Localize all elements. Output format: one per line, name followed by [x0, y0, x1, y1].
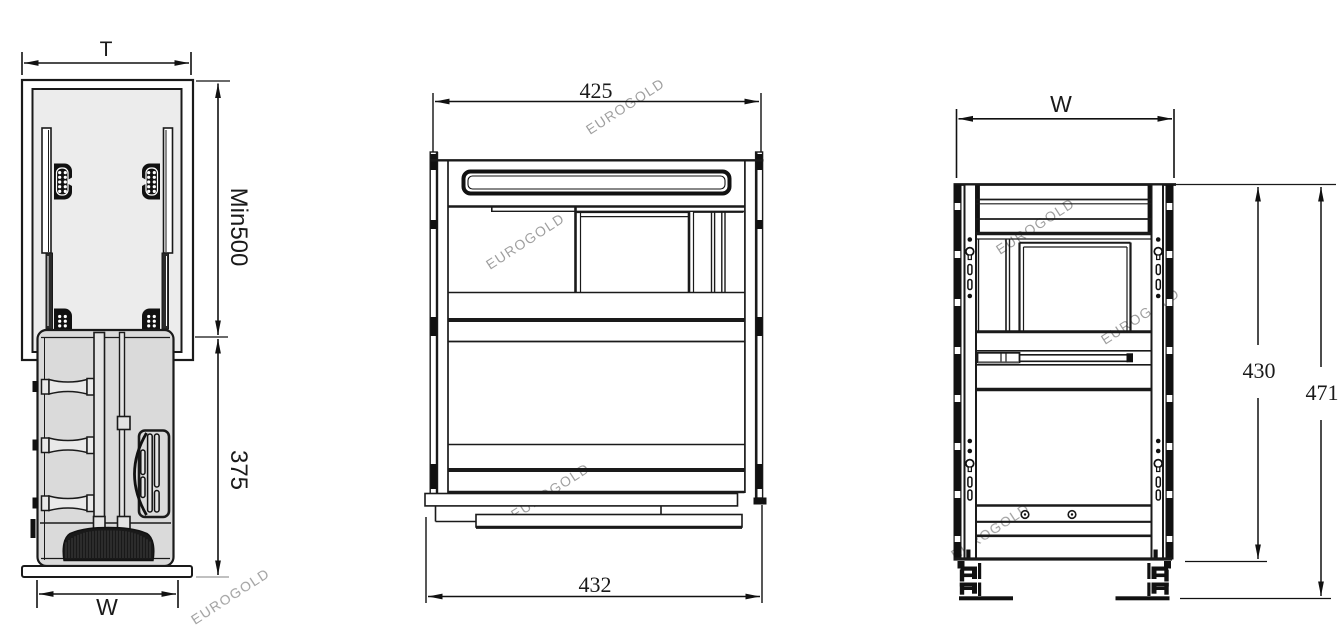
- svg-text:W: W: [96, 594, 118, 620]
- svg-text:471: 471: [1306, 380, 1339, 405]
- svg-text:EUROGOLD: EUROGOLD: [483, 210, 568, 273]
- svg-text:EUROGOLD: EUROGOLD: [188, 565, 273, 628]
- svg-text:W: W: [1050, 91, 1072, 117]
- svg-text:430: 430: [1243, 358, 1276, 383]
- svg-text:375: 375: [225, 450, 252, 490]
- svg-text:Min500: Min500: [225, 188, 252, 267]
- svg-text:425: 425: [580, 78, 613, 103]
- svg-text:T: T: [100, 38, 113, 61]
- svg-text:432: 432: [579, 572, 612, 597]
